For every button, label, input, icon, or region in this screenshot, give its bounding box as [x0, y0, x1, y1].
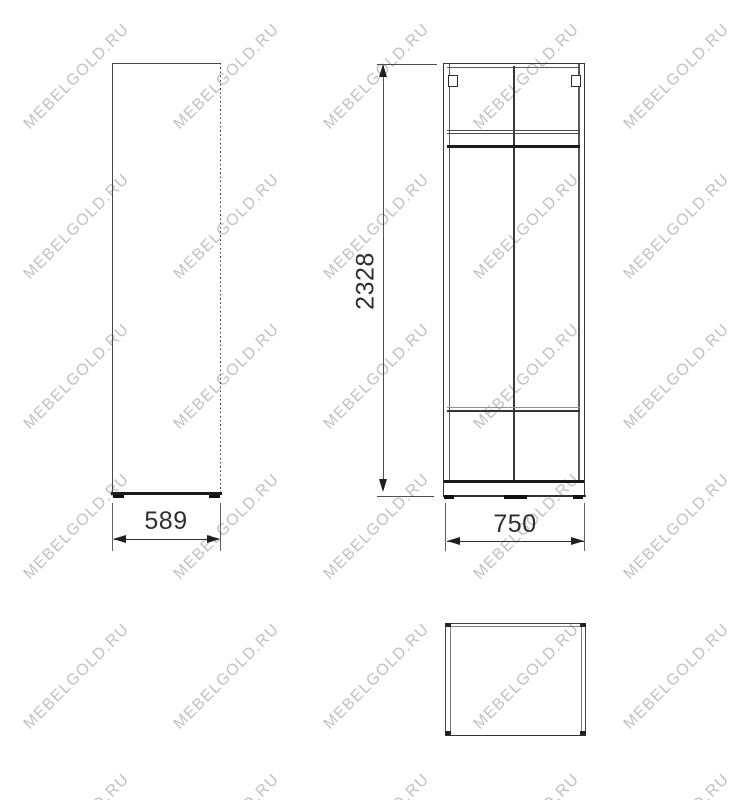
top-view-cap-top-right — [580, 623, 586, 627]
top-view-cap-top-left — [445, 623, 451, 627]
top-view-top-inner-line — [450, 626, 582, 627]
top-view-body — [445, 623, 586, 736]
front-view-foot-center — [504, 495, 527, 499]
drawing-layer: 589 2328 — [0, 0, 749, 800]
depth-dim-value: 589 — [111, 509, 221, 534]
front-view-foot-right — [573, 495, 583, 499]
front-view-bottom-panel — [444, 480, 584, 483]
height-dim-extension-bottom — [377, 496, 434, 497]
height-dim-arrow-down — [379, 479, 387, 492]
height-dim-line — [383, 66, 384, 490]
front-view-right-panel-inner-line — [578, 64, 579, 481]
lower-shelf-bottom-line — [447, 410, 580, 412]
top-view-right-outer-line — [585, 623, 586, 736]
top-view-left-outer-line — [445, 623, 446, 736]
depth-dim-arrow-right — [207, 535, 220, 543]
depth-dim-arrow-left — [113, 535, 126, 543]
upper-shelf-bottom-line — [447, 133, 580, 134]
front-view-left-panel-inner-line — [449, 64, 450, 481]
side-view-base-panel — [111, 492, 222, 495]
top-view-cap-bottom-left — [445, 731, 451, 736]
side-view-foot-right — [209, 495, 220, 498]
front-view-foot-left — [444, 495, 454, 499]
upper-shelf-top-line — [447, 130, 580, 131]
width-dim-line — [447, 541, 584, 542]
lower-shelf-top-line — [447, 407, 580, 408]
width-dim-arrow-right — [571, 537, 584, 545]
hinge-right — [571, 75, 581, 87]
top-view-cap-bottom-right — [580, 731, 586, 736]
hinge-left — [448, 75, 458, 87]
top-view-left-inner-line — [450, 624, 451, 733]
width-dim-arrow-left — [447, 537, 460, 545]
hanging-rod — [447, 145, 580, 149]
height-dim-arrow-up — [379, 64, 387, 77]
front-view-center-divider — [513, 66, 515, 482]
top-view-right-inner-line — [581, 624, 582, 733]
side-view-body — [112, 63, 221, 492]
side-view-front-edge-dotted — [220, 63, 222, 492]
side-view-foot-left — [113, 495, 124, 498]
width-dim-value: 750 — [446, 512, 584, 537]
technical-drawing-canvas: MEBELGOLD.RUMEBELGOLD.RUMEBELGOLD.RUMEBE… — [0, 0, 749, 800]
height-dim-value: 2328 — [354, 252, 379, 310]
depth-dim-line — [114, 539, 218, 540]
